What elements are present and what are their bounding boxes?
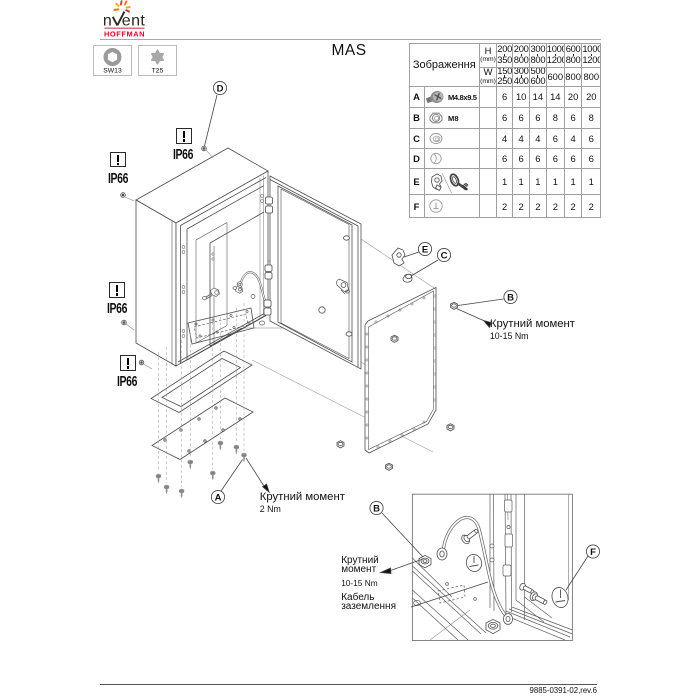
svg-text:F: F [590,547,596,558]
svg-text:D: D [217,83,224,94]
svg-text:B: B [507,292,514,303]
svg-text:C: C [441,250,448,261]
svg-text:A: A [215,492,222,503]
svg-text:B: B [373,503,380,514]
svg-text:E: E [422,244,428,255]
